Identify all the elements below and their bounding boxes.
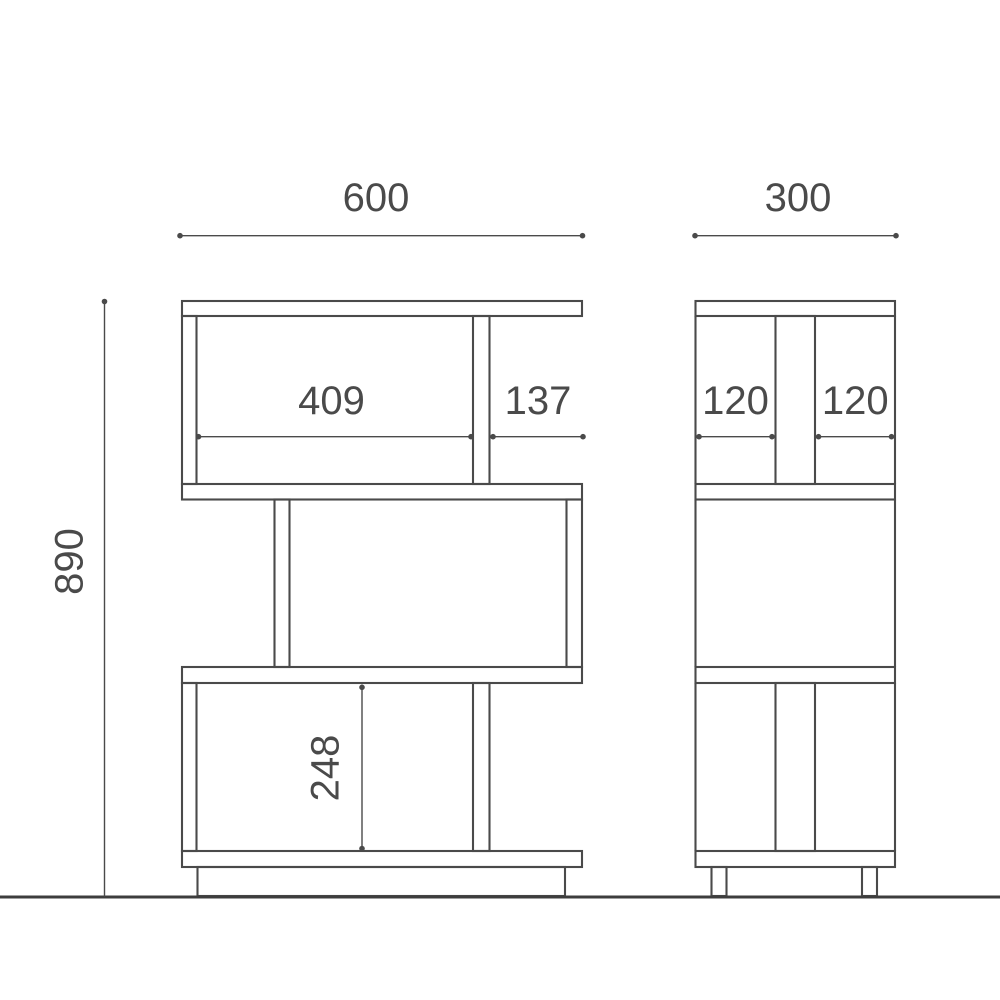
svg-text:409: 409 xyxy=(298,379,365,423)
svg-text:300: 300 xyxy=(765,176,832,220)
svg-text:120: 120 xyxy=(702,379,769,423)
svg-text:137: 137 xyxy=(505,379,572,423)
svg-text:890: 890 xyxy=(48,528,92,595)
svg-text:600: 600 xyxy=(343,176,410,220)
svg-text:120: 120 xyxy=(822,379,889,423)
svg-text:248: 248 xyxy=(304,735,348,802)
